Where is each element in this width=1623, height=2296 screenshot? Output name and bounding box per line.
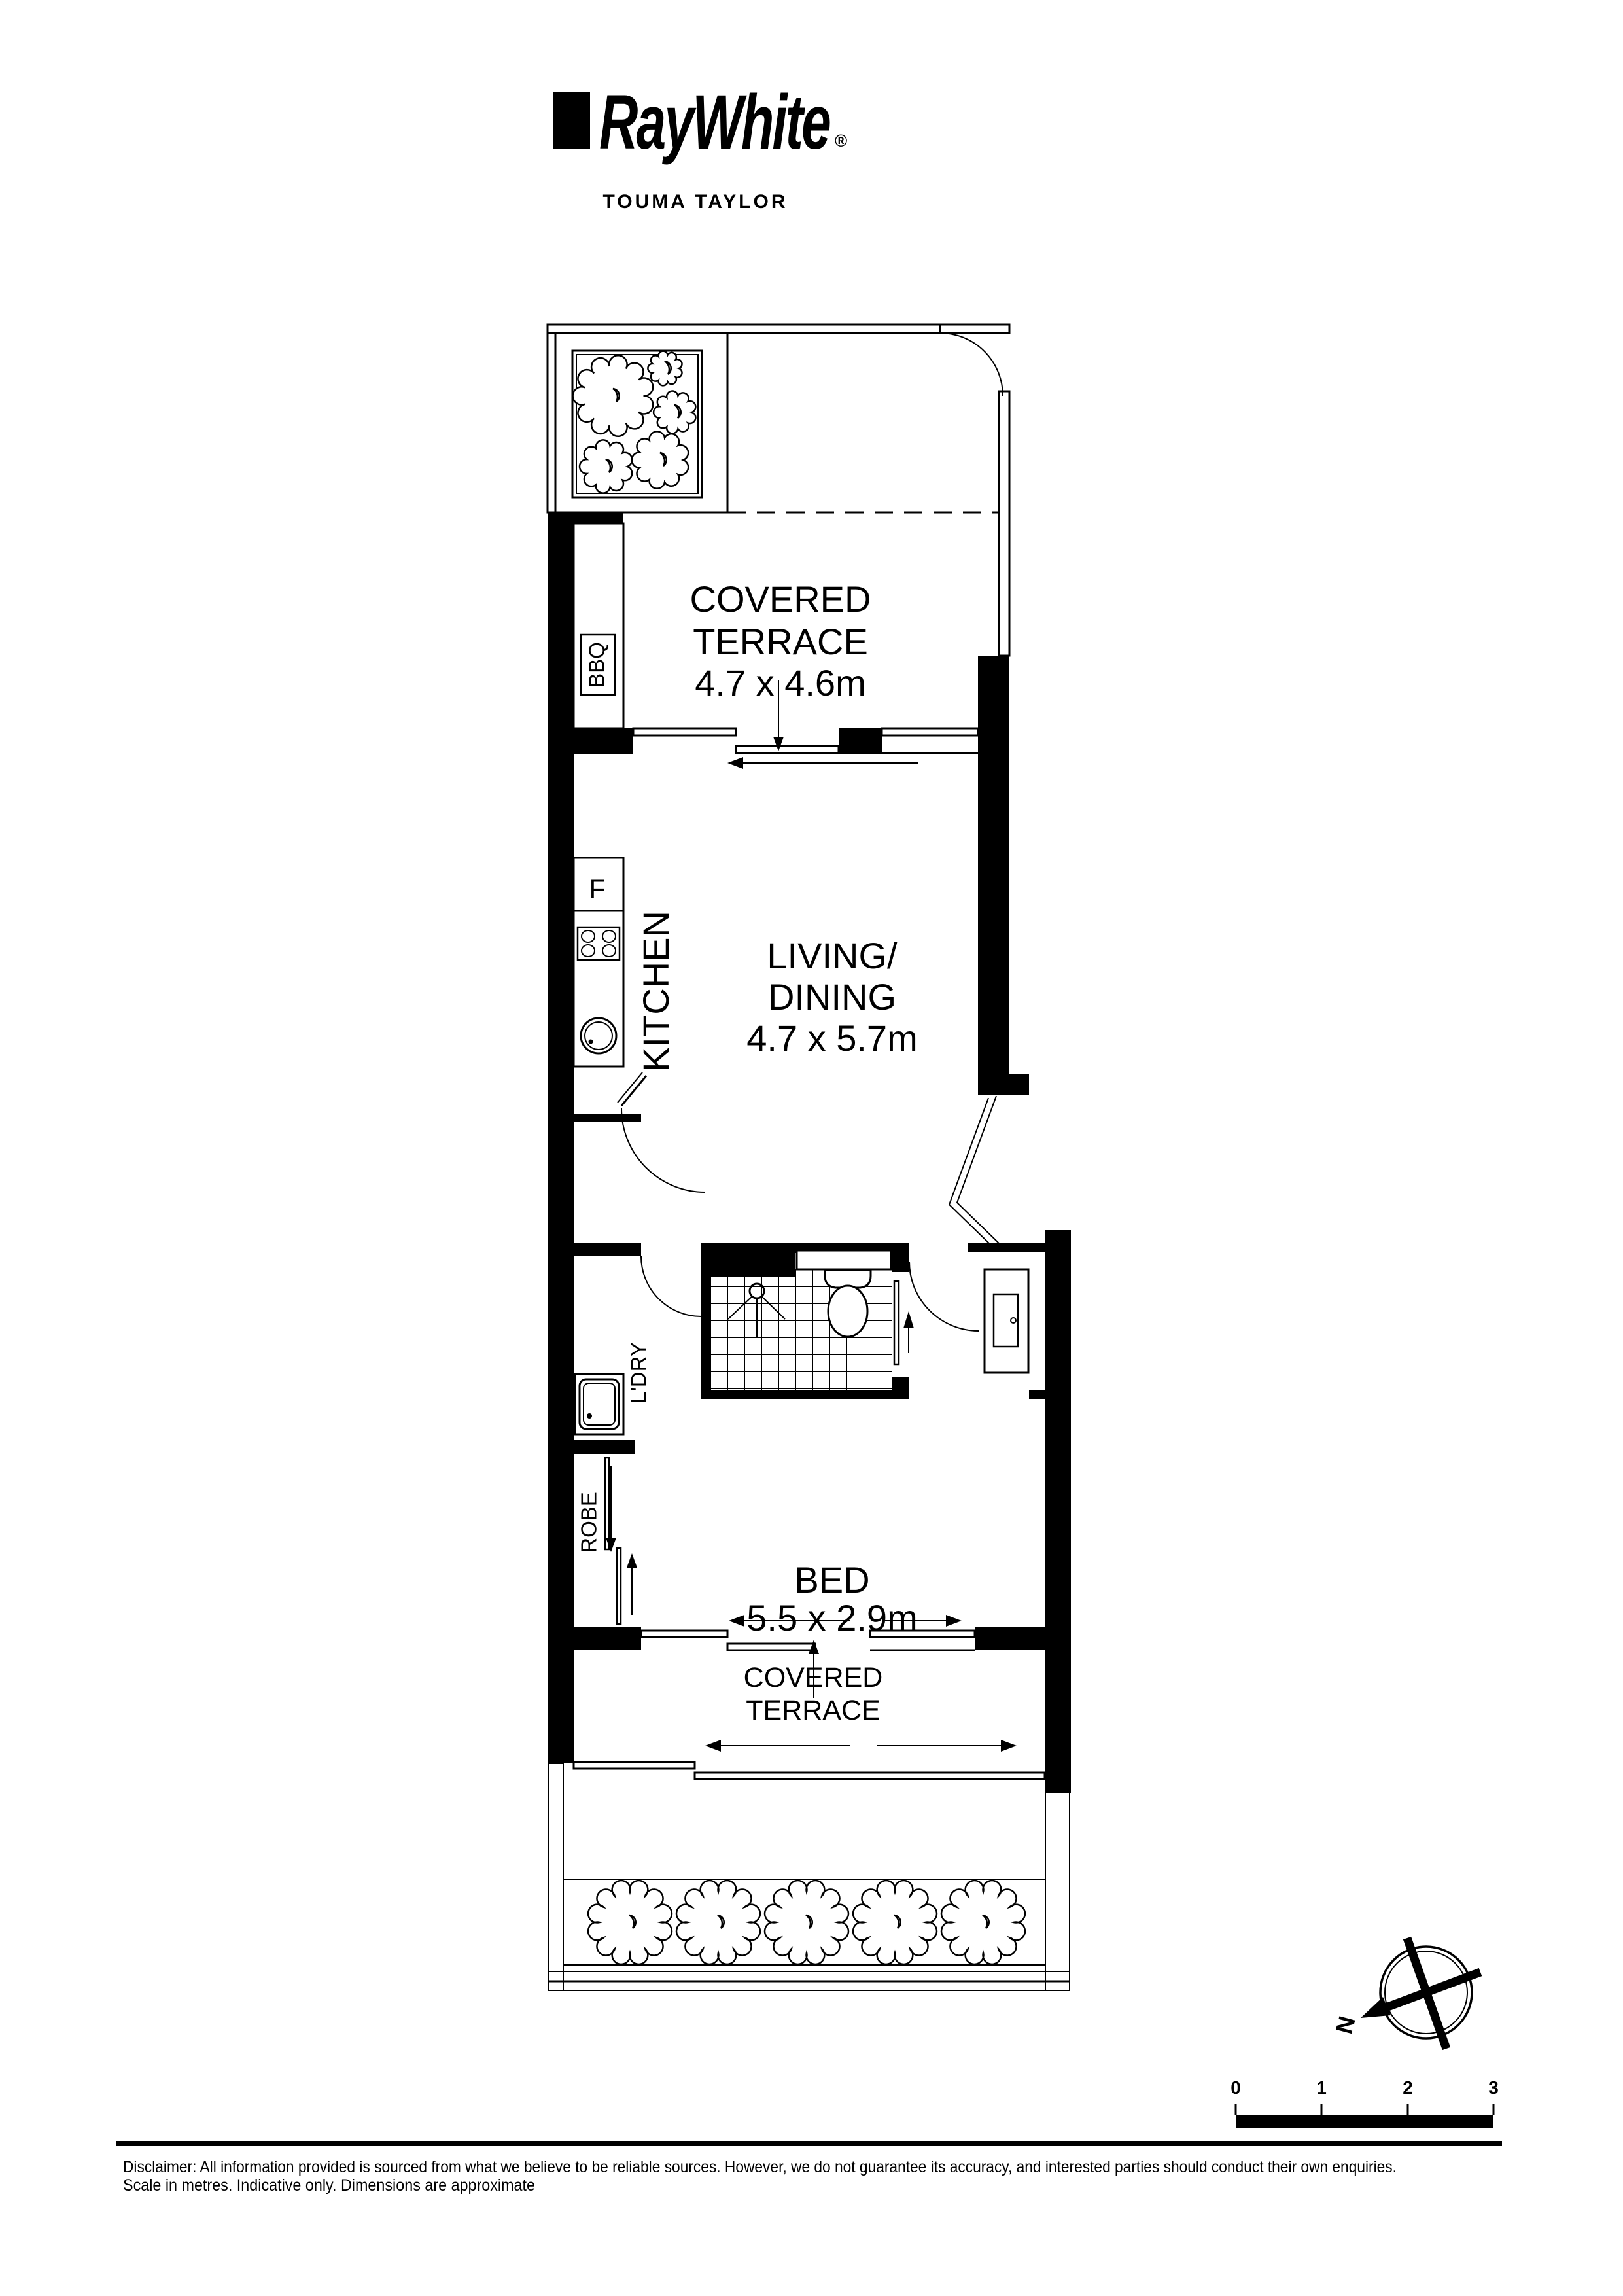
laundry-tub: [580, 1379, 619, 1429]
window: [882, 728, 978, 735]
gate-leaf: [940, 325, 1009, 333]
wall-vestibule-stub: [1029, 1390, 1045, 1399]
door-knob-icon: [1011, 1318, 1016, 1323]
scale-tick-label: 0: [1230, 2077, 1241, 2098]
sink-icon: [581, 1018, 616, 1053]
wall-bed-terrace-left: [548, 1627, 641, 1650]
left-arrow-icon: [729, 1615, 744, 1627]
wall-junction-mid: [839, 728, 882, 754]
slider-panel: [574, 1762, 695, 1769]
slider-panel: [641, 1631, 727, 1637]
bed-label: BED: [794, 1559, 869, 1600]
laundry-label: L'DRY: [627, 1342, 651, 1404]
terrace-top-label-1: COVERED: [690, 578, 871, 620]
room-labels: COVERED TERRACE 4.7 x 4.6m LIVING/ DININ…: [690, 578, 918, 1726]
living-label-2: DINING: [768, 976, 896, 1017]
terrace-garden: [548, 1763, 1070, 1990]
scale-tick-label: 2: [1403, 2077, 1413, 2098]
kitchen-door-leaf2: [618, 1072, 642, 1103]
right-arrow-icon: [1001, 1740, 1017, 1752]
wall-junction-left: [574, 728, 633, 754]
bathroom-wall-bottom: [701, 1390, 909, 1399]
scale-tick-label: 3: [1488, 2077, 1499, 2098]
gate-door-arc: [940, 333, 1003, 396]
tree-icon: [580, 440, 632, 493]
closet-door: [994, 1294, 1018, 1347]
bifold-door: [949, 1096, 999, 1245]
registered-mark: ®: [835, 131, 847, 150]
terrace-top-label-2: TERRACE: [693, 621, 868, 662]
terrace-wall-right: [1045, 1793, 1070, 1990]
floorplan-page: RayWhite ® TOUMA TAYLOR: [0, 0, 1623, 2296]
disclaimer-line1: Disclaimer: All information provided is …: [123, 2158, 1397, 2176]
bed-dims: 5.5 x 2.9m: [746, 1597, 917, 1638]
living-dims: 4.7 x 5.7m: [746, 1017, 917, 1059]
left-arrow-icon: [727, 757, 743, 769]
wall-top: [548, 325, 940, 333]
robe-slider-panel: [617, 1548, 621, 1624]
down-arrow-icon: [773, 737, 784, 751]
slider-panel: [727, 1644, 815, 1650]
terrace-top-dims: 4.7 x 4.6m: [695, 662, 865, 703]
terrace-bottom-label-1: COVERED: [744, 1662, 883, 1693]
kitchen-label: KITCHEN: [635, 911, 676, 1072]
robe: ROBE: [577, 1458, 637, 1624]
wall-bed-terrace-right: [975, 1627, 1071, 1650]
closet: [985, 1269, 1028, 1373]
wall-right-upper: [999, 391, 1009, 656]
burner-icon: [582, 945, 595, 957]
wall-bbq-top: [574, 512, 623, 523]
ray-white-logo: RayWhite ® TOUMA TAYLOR: [553, 79, 847, 213]
wall-right-bed: [1045, 1230, 1071, 1793]
brand-text: RayWhite: [599, 79, 830, 166]
tree-icon: [588, 1881, 672, 1964]
bathroom-wall-right-top: [892, 1243, 909, 1272]
burner-icon: [602, 930, 616, 942]
left-arrow-icon: [705, 1740, 721, 1752]
slider-panel: [695, 1773, 1045, 1779]
compass: N: [1331, 1938, 1480, 2049]
tree-icon: [676, 1881, 760, 1964]
right-arrow-icon: [946, 1615, 962, 1627]
footer: Disclaimer: All information provided is …: [116, 2141, 1502, 2195]
north-label: N: [1331, 2013, 1361, 2037]
tree-icon: [632, 431, 688, 488]
laundry: L'DRY: [575, 1342, 651, 1434]
wall-hall-left: [574, 1243, 641, 1256]
robe-slider-panel: [605, 1458, 609, 1549]
fridge-label: F: [589, 875, 605, 904]
laundry-tub-inner: [584, 1383, 615, 1425]
burner-icon: [602, 945, 616, 957]
living-label-1: LIVING/: [767, 935, 898, 976]
kitchen: F KITCHEN: [574, 858, 705, 1192]
up-arrow-icon: [627, 1553, 637, 1568]
wall-kitchen-hall: [574, 1114, 641, 1122]
tree-icon: [941, 1881, 1025, 1964]
terrace-bottom-doors: [574, 1740, 1045, 1779]
wall-left-upper: [548, 333, 555, 512]
scale-tick-label: 1: [1316, 2077, 1327, 2098]
wall-vestibule-top: [968, 1243, 1045, 1252]
vanity: [797, 1250, 891, 1269]
bbq-bench-outline: [574, 523, 623, 728]
closet-outline: [985, 1269, 1028, 1373]
kitchen-door-leaf: [621, 1076, 646, 1106]
hall-door-arc: [641, 1256, 701, 1316]
sink-drain: [589, 1040, 593, 1044]
slider-panel: [736, 746, 839, 753]
office-name: TOUMA TAYLOR: [602, 191, 788, 213]
tree-icon: [765, 1881, 848, 1964]
vestibule-door-arc: [909, 1262, 979, 1331]
bathroom: [701, 1243, 914, 1399]
bifold-leaf: [949, 1098, 991, 1245]
tree-icon: [573, 355, 654, 436]
disclaimer-line2: Scale in metres. Indicative only. Dimens…: [123, 2176, 535, 2195]
bbq-label: BBQ: [585, 642, 609, 688]
bathroom-wall-right-bottom: [892, 1377, 909, 1399]
terrace-bottom-label-2: TERRACE: [746, 1695, 880, 1726]
robe-label: ROBE: [577, 1492, 601, 1553]
logo-square: [553, 92, 590, 149]
bbq-bench: BBQ: [574, 523, 623, 728]
scale-bar-rect: [1236, 2115, 1493, 2128]
up-arrow-icon: [903, 1311, 914, 1328]
toilet-icon: [828, 1286, 867, 1337]
planter-box-top: [572, 351, 702, 497]
wall-right-living: [978, 656, 1009, 1095]
footer-divider: [116, 2141, 1502, 2146]
tree-icon: [648, 351, 682, 386]
tree-icon: [853, 1881, 937, 1964]
wall-left-main: [548, 512, 574, 1763]
burner-icon: [582, 930, 595, 942]
sink-inner: [585, 1022, 612, 1050]
wall-laundry-stub: [574, 1440, 635, 1454]
terrace-wall-left: [548, 1763, 563, 1990]
tree-icon: [654, 391, 695, 434]
shower-wall-band: [710, 1253, 795, 1277]
bathroom-slider-panel: [894, 1281, 899, 1364]
wall-right-ell: [978, 1074, 1029, 1095]
slider-panel: [633, 728, 736, 735]
floor-plan: BBQ F KIT: [548, 325, 1071, 1990]
up-arrow-icon: [809, 1640, 819, 1654]
scale-bar: 0 1 2 3: [1230, 2077, 1499, 2128]
floorplan-canvas: RayWhite ® TOUMA TAYLOR: [0, 0, 1623, 2296]
tub-drain: [587, 1413, 592, 1419]
bifold-leaf: [957, 1096, 999, 1243]
bathroom-wall-left: [701, 1253, 710, 1390]
